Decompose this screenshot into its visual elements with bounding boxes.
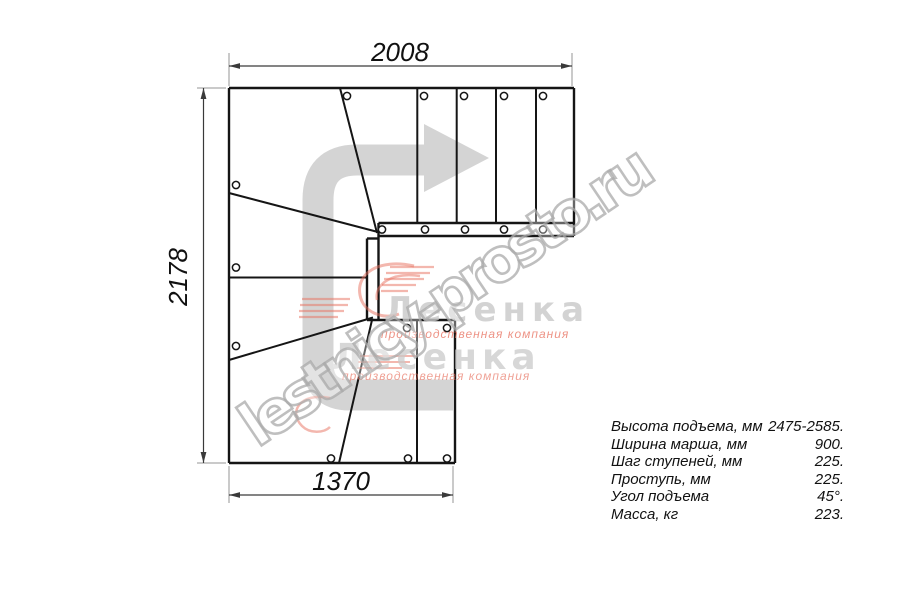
spec-row: Угол подъема 45°. xyxy=(611,488,844,506)
spec-value: 900. xyxy=(815,436,844,454)
spec-value: 45°. xyxy=(817,488,844,506)
spec-value: 2475-2585. xyxy=(768,418,844,436)
dimension-left-value: 2178 xyxy=(163,248,193,307)
spec-row: Проступь, мм 225. xyxy=(611,471,844,489)
spec-row: Шаг ступеней, мм 225. xyxy=(611,453,844,471)
direction-arrow-icon xyxy=(318,124,489,395)
spec-value: 223. xyxy=(815,506,844,524)
spec-value: 225. xyxy=(815,471,844,489)
dimension-top-value: 2008 xyxy=(370,37,429,67)
dimension-bottom-value: 1370 xyxy=(312,466,370,496)
spec-label: Угол подъема xyxy=(611,488,709,506)
spec-label: Ширина марша, мм xyxy=(611,436,747,454)
spec-row: Ширина марша, мм 900. xyxy=(611,436,844,454)
spec-row: Масса, кг 223. xyxy=(611,506,844,524)
spec-value: 225. xyxy=(815,453,844,471)
spec-label: Проступь, мм xyxy=(611,471,711,489)
spec-label: Шаг ступеней, мм xyxy=(611,453,742,471)
spec-table: Высота подъема, мм 2475-2585. Ширина мар… xyxy=(611,418,844,523)
spec-label: Высота подъема, мм xyxy=(611,418,763,436)
spec-label: Масса, кг xyxy=(611,506,678,524)
spec-row: Высота подъема, мм 2475-2585. xyxy=(611,418,844,436)
dimension-top-width: 2008 xyxy=(229,37,572,86)
dimension-bottom-width: 1370 xyxy=(229,466,453,503)
staircase-drawing-page: 2008 2178 1370 Лесенка производственная … xyxy=(0,0,900,600)
dimension-left-height: 2178 xyxy=(163,88,226,463)
